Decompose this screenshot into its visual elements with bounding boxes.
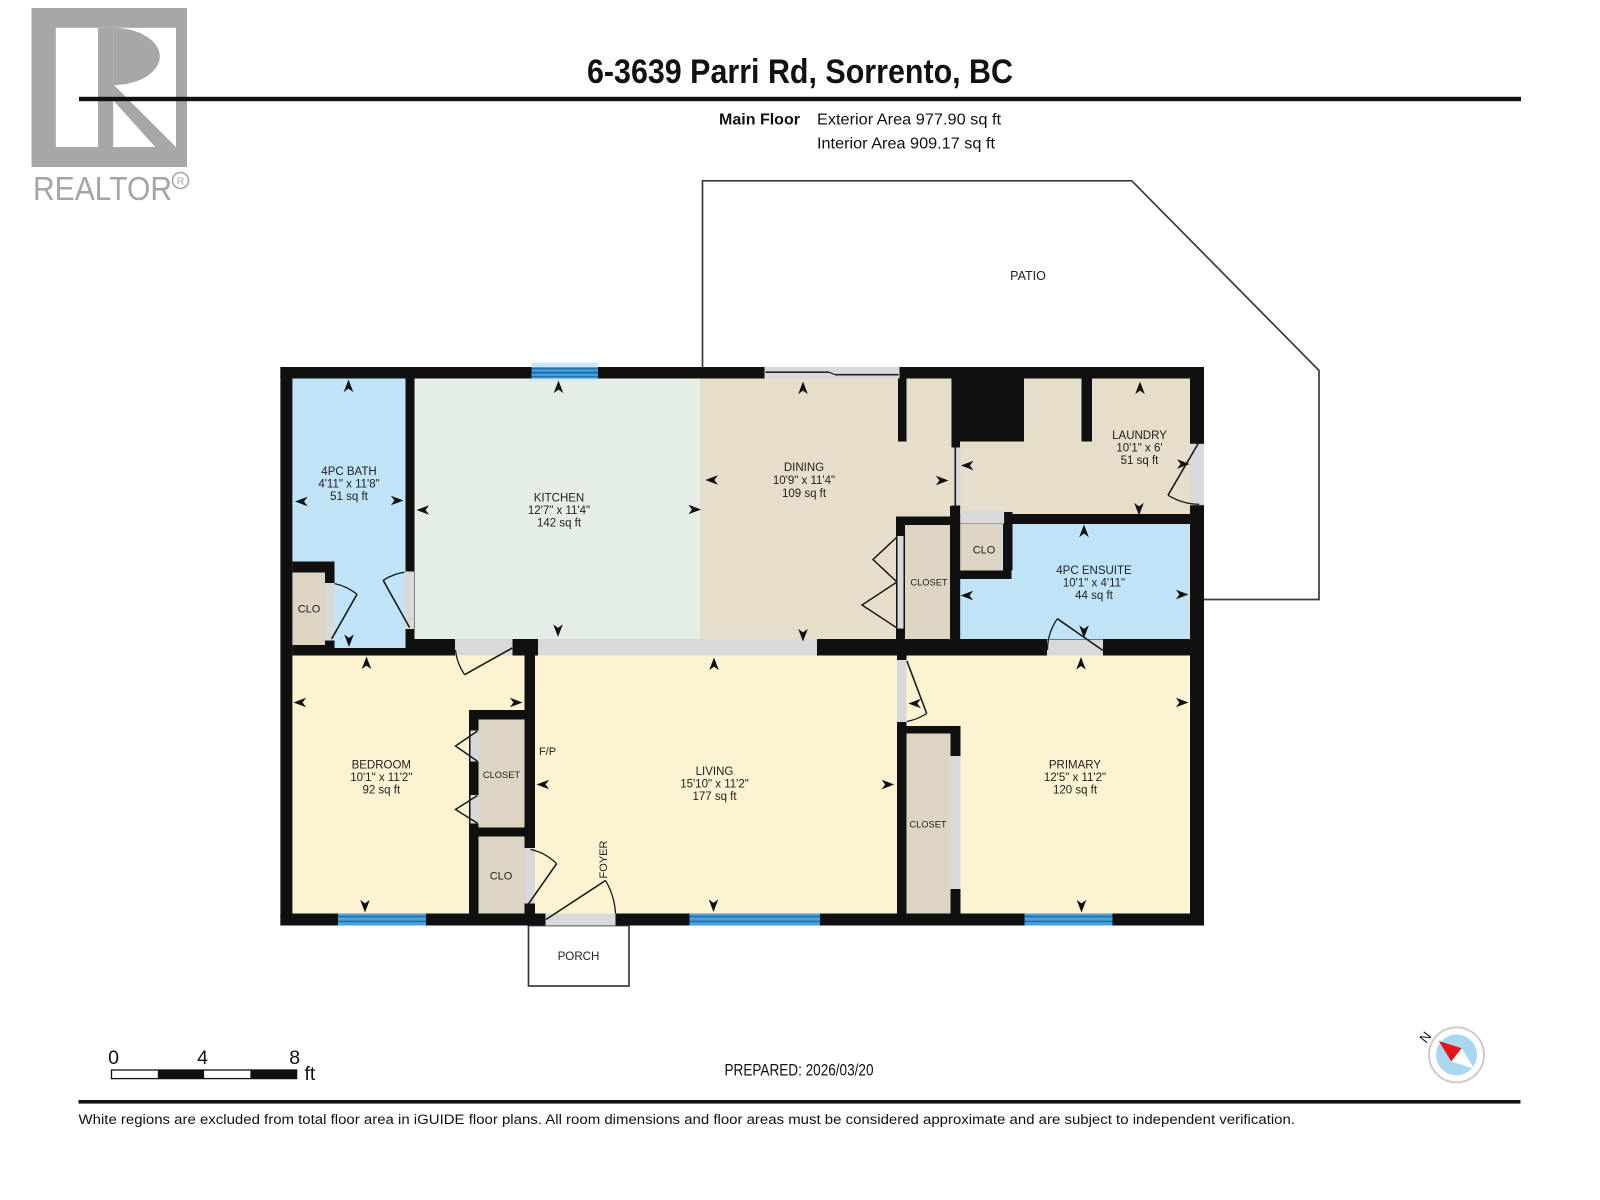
svg-text:51 sq ft: 51 sq ft bbox=[330, 491, 369, 503]
svg-text:4PC BATH: 4PC BATH bbox=[321, 466, 376, 478]
svg-text:DINING: DINING bbox=[784, 462, 824, 474]
svg-text:CLOSET: CLOSET bbox=[910, 578, 948, 588]
svg-text:109 sq ft: 109 sq ft bbox=[782, 488, 827, 500]
svg-text:15'10" x 11'2": 15'10" x 11'2" bbox=[680, 779, 749, 791]
svg-text:CLO: CLO bbox=[298, 604, 321, 616]
svg-text:F/P: F/P bbox=[539, 746, 556, 758]
svg-text:51 sq ft: 51 sq ft bbox=[1121, 455, 1160, 467]
svg-text:142 sq ft: 142 sq ft bbox=[537, 518, 582, 530]
svg-text:CLO: CLO bbox=[973, 545, 996, 557]
svg-text:CLO: CLO bbox=[490, 871, 513, 883]
svg-text:4'11" x 11'8": 4'11" x 11'8" bbox=[318, 479, 379, 491]
svg-text:PREPARED: 2026/03/20: PREPARED: 2026/03/20 bbox=[725, 1062, 874, 1080]
svg-text:12'5" x 11'2": 12'5" x 11'2" bbox=[1044, 772, 1106, 784]
svg-text:CLOSET: CLOSET bbox=[909, 820, 947, 830]
svg-text:0: 0 bbox=[108, 1047, 119, 1069]
svg-text:R: R bbox=[177, 176, 185, 188]
svg-text:10'1" x 6': 10'1" x 6' bbox=[1116, 443, 1162, 455]
svg-text:8: 8 bbox=[289, 1047, 300, 1069]
svg-text:REALTOR: REALTOR bbox=[33, 170, 172, 207]
svg-text:177 sq ft: 177 sq ft bbox=[692, 791, 737, 803]
svg-text:LAUNDRY: LAUNDRY bbox=[1112, 430, 1167, 442]
svg-text:Interior Area 909.17 sq ft: Interior Area 909.17 sq ft bbox=[817, 136, 996, 153]
svg-text:CLOSET: CLOSET bbox=[483, 770, 521, 780]
svg-text:KITCHEN: KITCHEN bbox=[534, 493, 584, 505]
svg-text:10'1" x 11'2": 10'1" x 11'2" bbox=[350, 772, 412, 784]
svg-text:PRIMARY: PRIMARY bbox=[1049, 760, 1102, 772]
svg-text:FOYER: FOYER bbox=[598, 841, 610, 879]
svg-text:4PC ENSUITE: 4PC ENSUITE bbox=[1056, 565, 1132, 577]
svg-text:6-3639 Parri Rd, Sorrento, BC: 6-3639 Parri Rd, Sorrento, BC bbox=[587, 53, 1013, 91]
svg-text:BEDROOM: BEDROOM bbox=[352, 760, 411, 772]
svg-text:White regions are excluded fro: White regions are excluded from total fl… bbox=[79, 1112, 1296, 1127]
svg-text:ft: ft bbox=[305, 1063, 316, 1085]
svg-text:12'7" x 11'4": 12'7" x 11'4" bbox=[528, 505, 590, 517]
svg-text:LIVING: LIVING bbox=[696, 766, 734, 778]
svg-text:10'1" x 4'11": 10'1" x 4'11" bbox=[1063, 578, 1125, 590]
svg-text:10'9" x 11'4": 10'9" x 11'4" bbox=[773, 475, 835, 487]
svg-text:Exterior Area 977.90 sq ft: Exterior Area 977.90 sq ft bbox=[817, 112, 1002, 129]
svg-text:120 sq ft: 120 sq ft bbox=[1053, 785, 1098, 797]
svg-text:Main Floor: Main Floor bbox=[719, 112, 800, 129]
svg-text:4: 4 bbox=[197, 1047, 208, 1069]
svg-text:44 sq ft: 44 sq ft bbox=[1075, 590, 1114, 602]
svg-text:92 sq ft: 92 sq ft bbox=[362, 785, 401, 797]
svg-text:PORCH: PORCH bbox=[558, 950, 600, 963]
svg-text:PATIO: PATIO bbox=[1010, 269, 1046, 283]
